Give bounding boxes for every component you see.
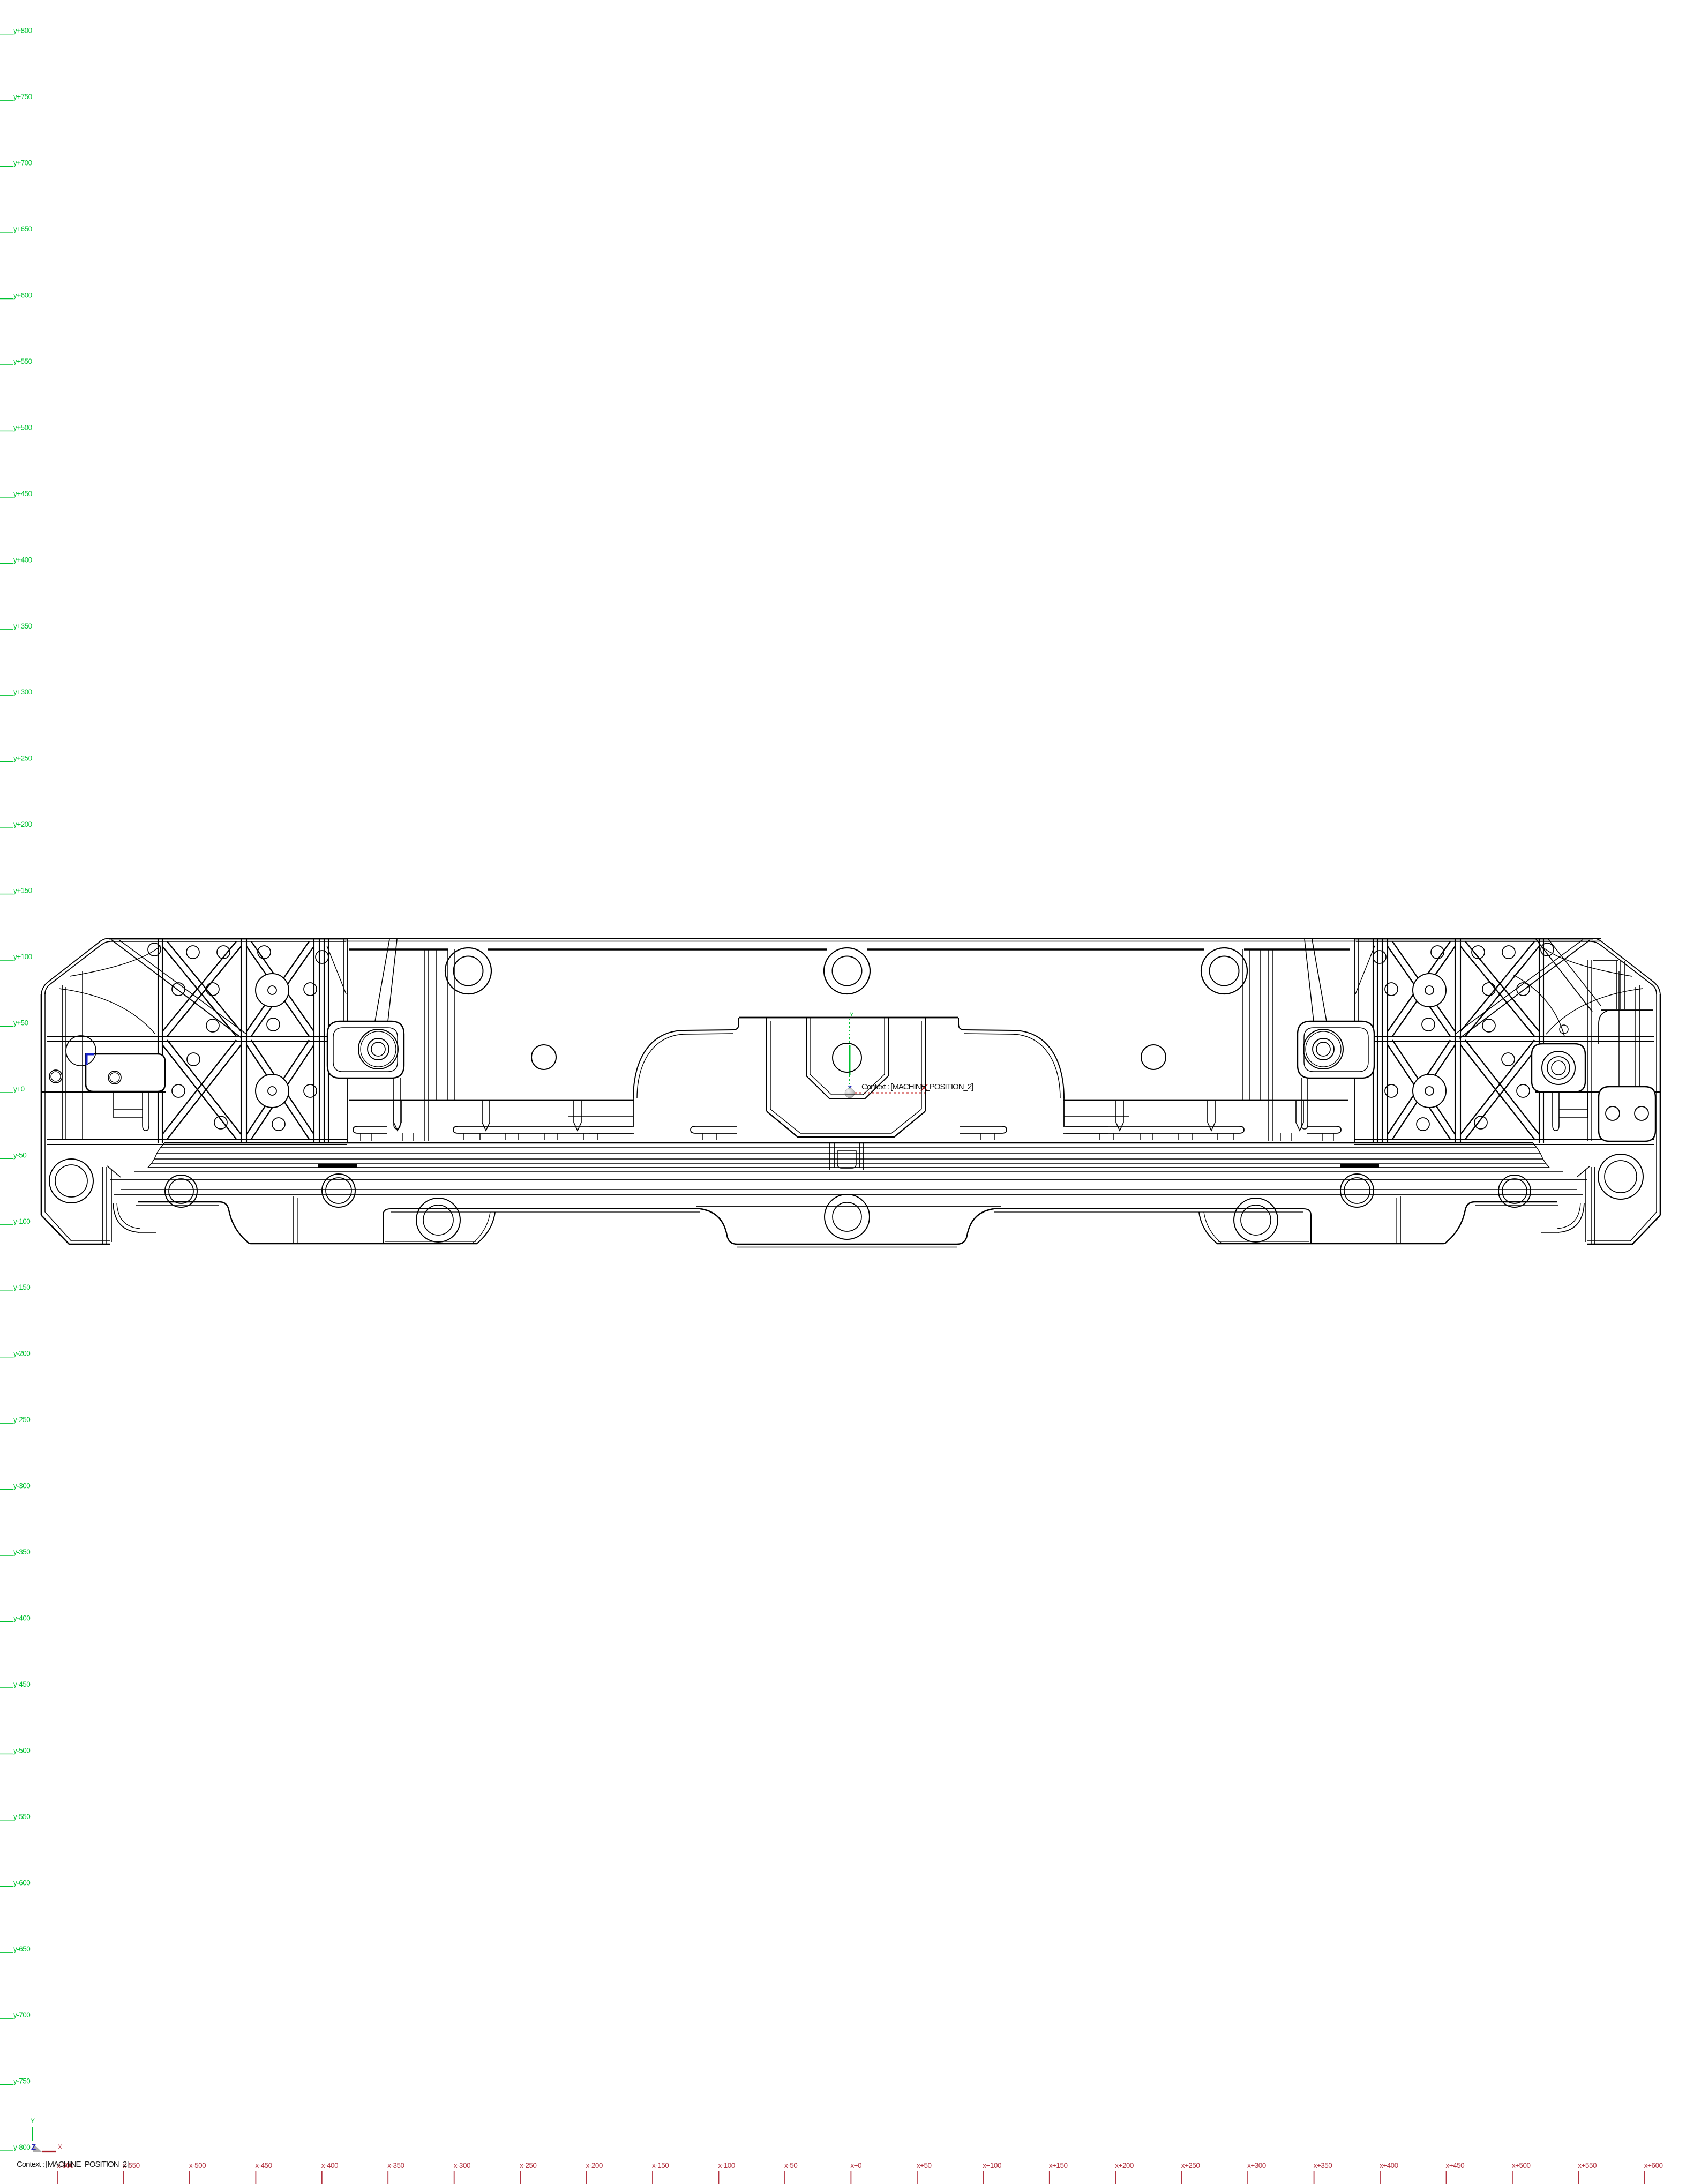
svg-text:x+500: x+500 (1512, 2161, 1531, 2170)
svg-text:x-300: x-300 (454, 2161, 470, 2170)
svg-text:x+200: x+200 (1115, 2161, 1134, 2170)
svg-text:y-700: y-700 (13, 2011, 30, 2019)
svg-text:x+0: x+0 (850, 2161, 861, 2170)
svg-text:y-100: y-100 (13, 1217, 30, 1225)
svg-text:Context : [MACHINE_POSITION_2]: Context : [MACHINE_POSITION_2] (17, 2160, 129, 2169)
svg-text:y+750: y+750 (13, 93, 32, 101)
svg-text:y-250: y-250 (13, 1416, 30, 1424)
svg-text:y+50: y+50 (13, 1019, 28, 1027)
svg-text:y-50: y-50 (13, 1151, 26, 1159)
svg-text:x+50: x+50 (917, 2161, 932, 2170)
svg-text:y-500: y-500 (13, 1746, 30, 1754)
svg-text:y-350: y-350 (13, 1548, 30, 1556)
svg-text:y+300: y+300 (13, 688, 32, 696)
svg-text:y+800: y+800 (13, 27, 32, 35)
svg-text:y-400: y-400 (13, 1614, 30, 1622)
svg-text:y+400: y+400 (13, 556, 32, 564)
svg-text:x+350: x+350 (1314, 2161, 1332, 2170)
svg-text:Y: Y (31, 2117, 35, 2125)
svg-text:Context : [MACHINE_POSITION_2]: Context : [MACHINE_POSITION_2] (861, 1082, 973, 1091)
svg-text:y-200: y-200 (13, 1350, 30, 1358)
svg-text:Z: Z (31, 2143, 36, 2152)
svg-text:x-200: x-200 (586, 2161, 603, 2170)
svg-text:x+100: x+100 (983, 2161, 1001, 2170)
svg-text:x-100: x-100 (718, 2161, 735, 2170)
svg-text:y+200: y+200 (13, 820, 32, 828)
svg-text:x-150: x-150 (652, 2161, 669, 2170)
svg-text:y+250: y+250 (13, 754, 32, 762)
svg-text:x+150: x+150 (1049, 2161, 1068, 2170)
svg-text:y+600: y+600 (13, 291, 32, 300)
svg-text:y-650: y-650 (13, 1945, 30, 1953)
svg-text:y+650: y+650 (13, 225, 32, 233)
svg-text:y+700: y+700 (13, 159, 32, 167)
svg-text:y+0: y+0 (13, 1085, 25, 1093)
svg-text:x+600: x+600 (1644, 2161, 1663, 2170)
svg-text:x-250: x-250 (520, 2161, 536, 2170)
svg-text:x-450: x-450 (255, 2161, 272, 2170)
svg-text:y+100: y+100 (13, 953, 32, 961)
svg-text:y+450: y+450 (13, 490, 32, 498)
svg-text:y-800: y-800 (13, 2143, 30, 2151)
svg-text:x+250: x+250 (1181, 2161, 1200, 2170)
svg-text:y+500: y+500 (13, 423, 32, 431)
svg-text:y+150: y+150 (13, 887, 32, 895)
svg-text:x-350: x-350 (387, 2161, 404, 2170)
svg-text:y-300: y-300 (13, 1482, 30, 1490)
svg-text:y-600: y-600 (13, 1879, 30, 1887)
svg-text:y-550: y-550 (13, 1813, 30, 1821)
svg-text:x+550: x+550 (1578, 2161, 1597, 2170)
svg-text:y+350: y+350 (13, 622, 32, 630)
svg-text:x+300: x+300 (1247, 2161, 1266, 2170)
svg-text:y-450: y-450 (13, 1680, 30, 1688)
svg-text:x+450: x+450 (1446, 2161, 1465, 2170)
svg-text:x-50: x-50 (784, 2161, 797, 2170)
svg-text:x-400: x-400 (321, 2161, 338, 2170)
svg-text:x+400: x+400 (1380, 2161, 1398, 2170)
svg-text:y-750: y-750 (13, 2077, 30, 2085)
svg-text:x-500: x-500 (189, 2161, 206, 2170)
svg-text:X: X (58, 2143, 62, 2151)
svg-text:y+550: y+550 (13, 357, 32, 365)
svg-text:y-150: y-150 (13, 1283, 30, 1291)
